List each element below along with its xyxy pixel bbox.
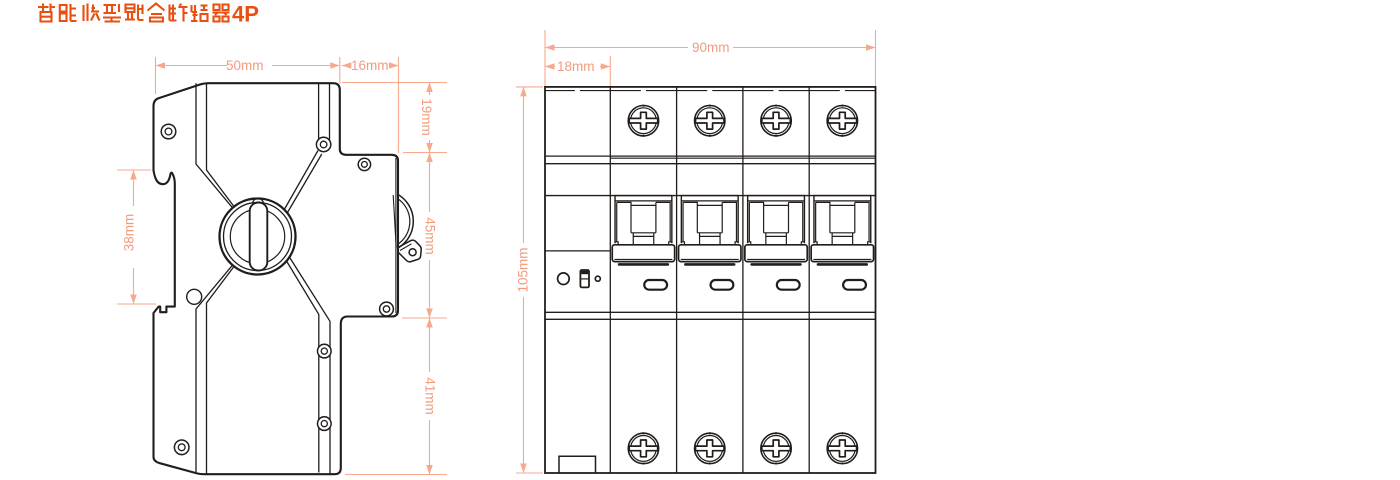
svg-text:45mm: 45mm (423, 217, 438, 255)
svg-text:19mm: 19mm (419, 98, 434, 136)
svg-text:18mm: 18mm (557, 59, 595, 74)
svg-text:16mm: 16mm (351, 58, 389, 73)
svg-text:38mm: 38mm (122, 214, 137, 252)
svg-text:50mm: 50mm (226, 58, 264, 73)
svg-text:105mm: 105mm (516, 247, 531, 292)
svg-text:4P: 4P (232, 2, 259, 27)
svg-text:41mm: 41mm (423, 377, 438, 415)
svg-text:90mm: 90mm (692, 40, 730, 55)
